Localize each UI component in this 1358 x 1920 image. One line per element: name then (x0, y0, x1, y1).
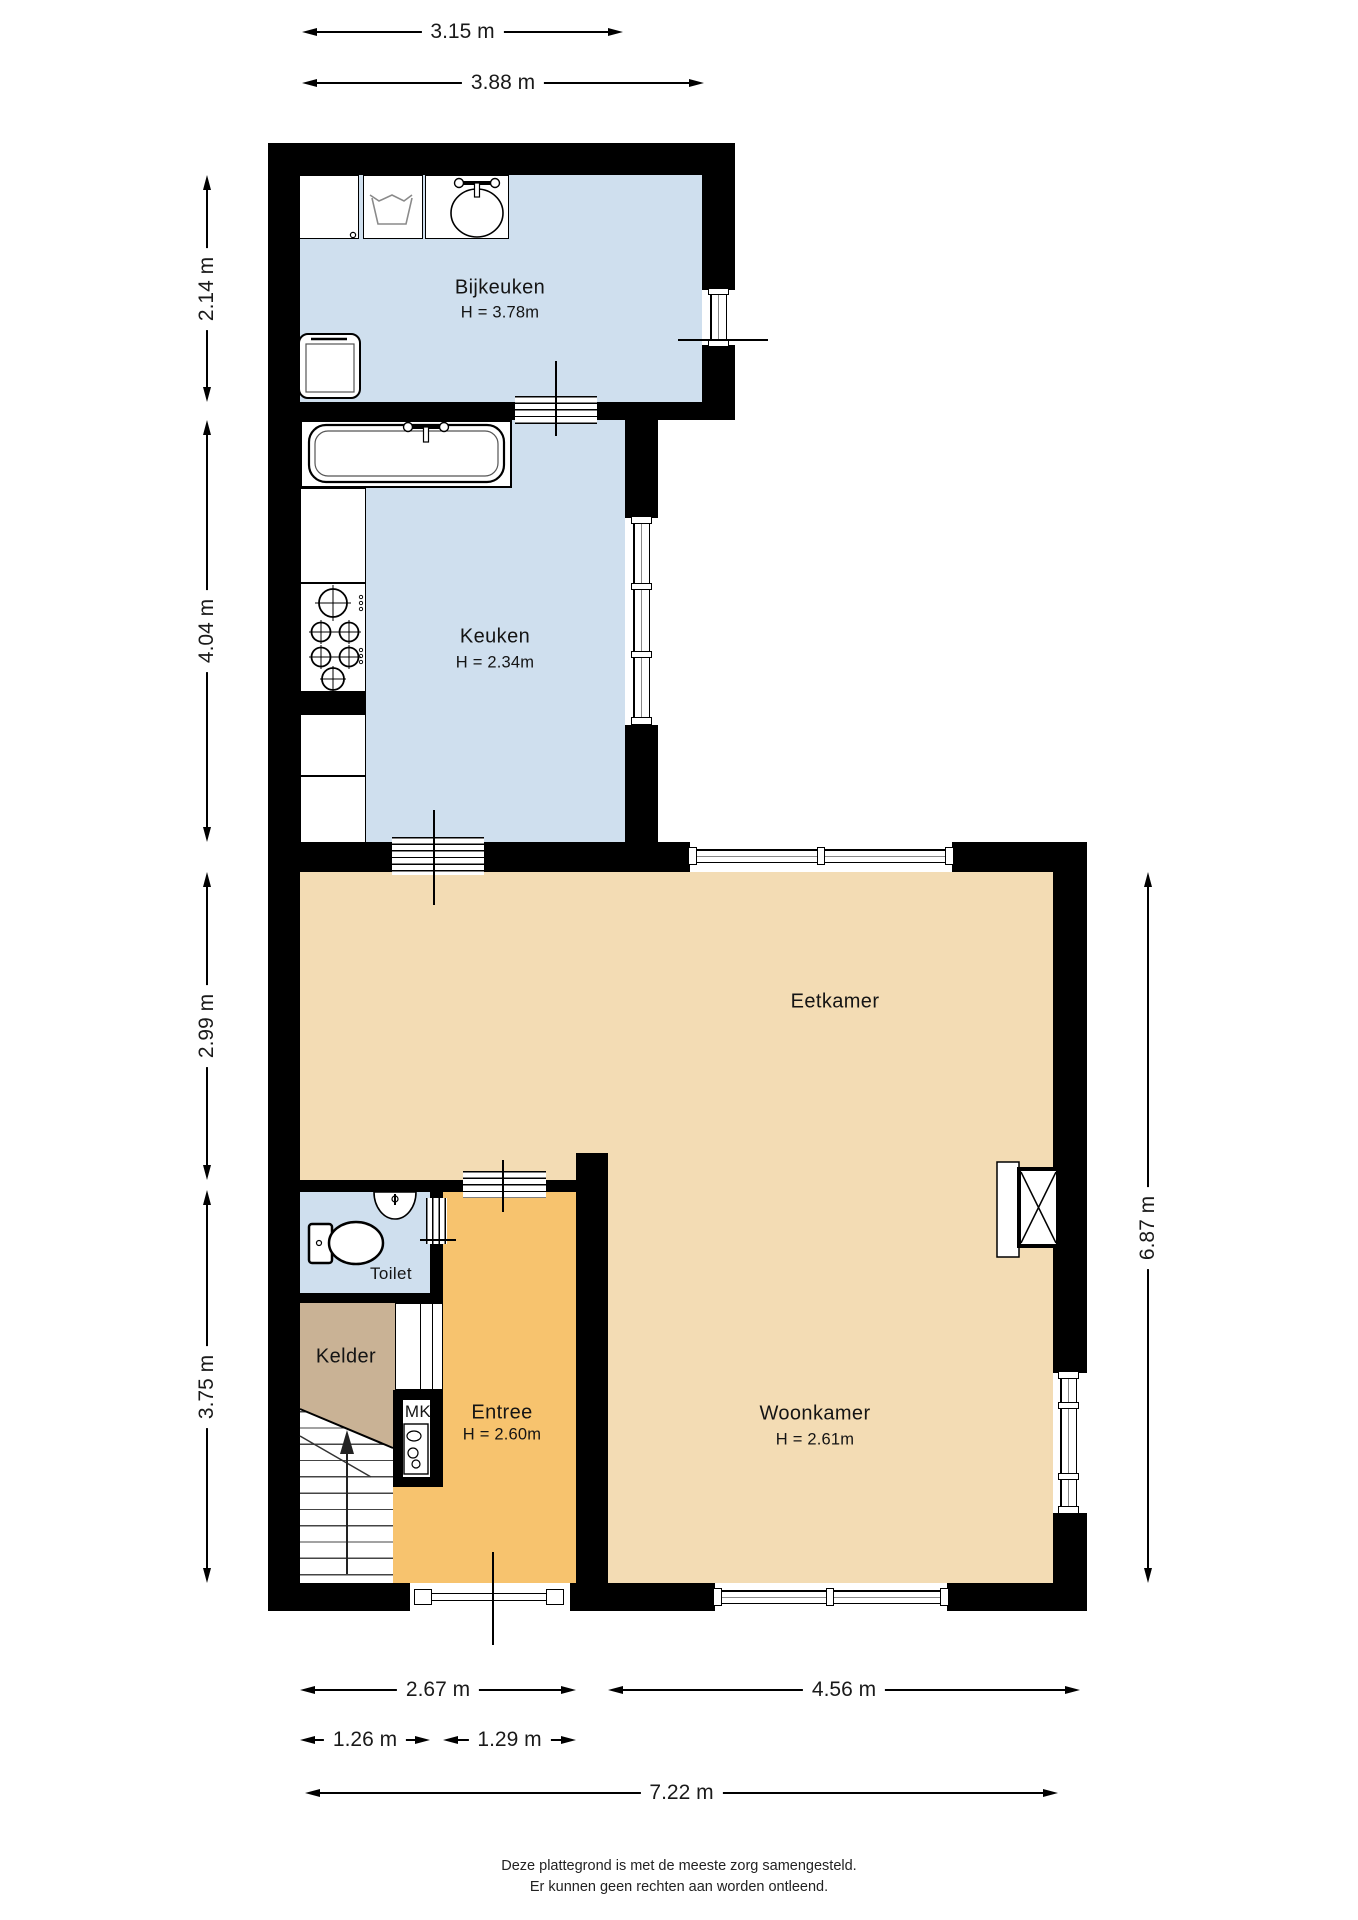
wall-eetkamer-top-2 (484, 842, 690, 872)
label-meterkast: MK (405, 1402, 431, 1422)
wall-bijkeuken-bottom-right (597, 402, 735, 420)
floorplan-page: Bijkeuken H = 3.78m Keuken H = 2.34m Eet… (0, 0, 1358, 1920)
door-bijkeuken-keuken-tick (555, 361, 557, 436)
window-cap (940, 1588, 949, 1606)
door-eetkamer-entree-tick (502, 1160, 504, 1212)
door-toilet-tick (420, 1239, 456, 1241)
window-cap (1058, 1371, 1079, 1379)
window-cap (688, 847, 697, 865)
label-bijkeuken-height: H = 3.78m (461, 304, 539, 323)
wall-outer-top (268, 143, 735, 175)
door-keuken-eetkamer-tick (433, 810, 435, 905)
dim-bottom-left-width: 2.67 m (300, 1683, 576, 1697)
front-door-jamb-right (546, 1589, 564, 1605)
window-cap (631, 516, 652, 524)
label-keuken: Keuken (460, 626, 530, 649)
footer-disclaimer-line1: Deze plattegrond is met de meeste zorg s… (0, 1858, 1358, 1874)
wall-toilet-bottom (300, 1293, 430, 1303)
wall-bottom-1 (268, 1583, 410, 1611)
label-toilet: Toilet (370, 1264, 412, 1284)
label-woonkamer-height: H = 2.61m (776, 1431, 854, 1450)
wall-mk-left (393, 1390, 403, 1487)
kitchen-counter-upper (300, 488, 366, 583)
label-woonkamer: Woonkamer (759, 1403, 870, 1426)
window-cap (713, 1588, 722, 1606)
dim-bottom-total-width: 7.22 m (305, 1786, 1058, 1800)
window-cap (708, 288, 729, 295)
window-bijkeuken-right (710, 290, 727, 345)
wall-eetkamer-top-1 (300, 842, 392, 872)
window-keuken-right (633, 518, 650, 725)
window-cap (1058, 1506, 1079, 1514)
door-toilet (426, 1198, 447, 1244)
wall-bijkeuken-bottom-left (268, 402, 515, 420)
wall-mk-right (430, 1390, 443, 1487)
window-woonkamer-right (1060, 1373, 1077, 1513)
door-eetkamer-entree (463, 1171, 546, 1198)
wall-entree-right (576, 1153, 608, 1583)
bathtub-counter (300, 420, 512, 488)
window-divider (1058, 1473, 1079, 1480)
bijkeuken-cabinet (298, 175, 359, 239)
dim-left-lower-depth: 3.75 m (200, 1190, 214, 1583)
window-cap (631, 717, 652, 725)
dim-left-keuken-depth: 4.04 m (200, 420, 214, 842)
wall-bijkeuken-right-b (702, 345, 735, 402)
label-kelder: Kelder (316, 1346, 376, 1369)
label-eetkamer: Eetkamer (791, 991, 880, 1014)
wall-bottom-2 (570, 1583, 715, 1611)
wall-toilet-top-2 (546, 1180, 578, 1192)
window-bijkeuken-tick (678, 339, 768, 341)
stove-box (300, 583, 366, 692)
window-divider (631, 651, 652, 658)
dim-bottom-entree-width: 1.29 m (443, 1733, 576, 1747)
room-entree-floor (443, 1190, 576, 1583)
label-entree: Entree (471, 1402, 532, 1425)
kitchen-counter-mid (300, 714, 366, 776)
washing-machine (363, 175, 423, 239)
front-door-leaf-top (432, 1593, 546, 1594)
dim-bottom-stairs-width: 1.26 m (300, 1733, 430, 1747)
kitchen-counter-low (300, 776, 366, 843)
dim-left-bijkeuken-depth: 2.14 m (200, 175, 214, 402)
wall-keuken-right-a (625, 420, 658, 518)
room-entree-floor-lower (393, 1487, 443, 1583)
window-divider (1058, 1402, 1079, 1409)
dim-top-inner-width: 3.15 m (302, 25, 623, 39)
label-bijkeuken: Bijkeuken (455, 277, 545, 300)
window-cap (945, 847, 954, 865)
window-divider (817, 847, 825, 865)
footer-disclaimer-line2: Er kunnen geen rechten aan worden ontlee… (0, 1879, 1358, 1895)
wall-eetkamer-top-3 (952, 842, 1087, 872)
dim-top-outer-width: 3.88 m (302, 76, 704, 90)
wall-toilet-right-b (430, 1241, 443, 1303)
front-door-tick (492, 1552, 494, 1645)
front-door-jamb-left (414, 1589, 432, 1605)
wall-bottom-3 (947, 1583, 1087, 1611)
label-keuken-height: H = 2.34m (456, 654, 534, 673)
dim-bottom-right-width: 4.56 m (608, 1683, 1080, 1697)
dim-left-eetkamer-depth: 2.99 m (200, 872, 214, 1180)
counter-divider (300, 692, 366, 714)
wall-outer-right-a (1053, 872, 1087, 1373)
window-divider (631, 583, 652, 590)
door-keuken-eetkamer (392, 837, 484, 875)
label-entree-height: H = 2.60m (463, 1426, 541, 1445)
wall-bijkeuken-right-a (702, 175, 735, 290)
dim-right-total-depth: 6.87 m (1141, 872, 1155, 1583)
bijkeuken-sink-counter (425, 175, 509, 239)
window-divider (826, 1588, 834, 1606)
front-door-leaf-bottom (432, 1600, 546, 1601)
kelder-door (395, 1303, 443, 1390)
wall-outer-left (268, 143, 300, 1611)
window-cap (708, 340, 729, 347)
